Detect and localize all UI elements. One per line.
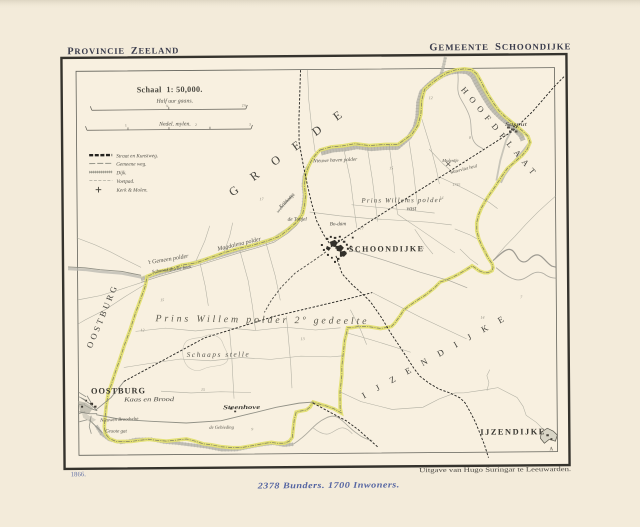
svg-text:14: 14 [439,195,443,200]
svg-text:1745: 1745 [452,182,460,187]
svg-text:Groote gat: Groote gat [105,428,127,434]
svg-text:A: A [549,446,553,452]
svg-text:2: 2 [195,123,197,127]
svg-text:Schaal 1: 50,000.: Schaal 1: 50,000. [137,85,203,95]
svg-text:de Tunjel: de Tunjel [288,217,308,223]
svg-text:2378 Bunders. 1700 Inwoners.: 2378 Bunders. 1700 Inwoners. [256,479,399,490]
svg-text:Steenhove: Steenhove [223,404,261,411]
svg-text:2½: 2½ [242,104,247,108]
svg-text:Kerk & Molen.: Kerk & Molen. [115,187,147,193]
svg-text:Molentje: Molentje [441,158,458,163]
svg-text:Bo-dam: Bo-dam [330,221,347,227]
svg-text:12: 12 [429,95,433,100]
svg-text:14: 14 [480,315,484,320]
svg-text:Nedel. mylen.: Nedel. mylen. [158,120,191,127]
svg-text:1866.: 1866. [71,471,87,478]
svg-text:Voetpad.: Voetpad. [116,179,134,185]
svg-text:Straat en Kunstweg.: Straat en Kunstweg. [116,153,158,159]
svg-text:12: 12 [141,327,145,332]
svg-text:15: 15 [160,297,164,302]
svg-text:15: 15 [389,165,393,170]
svg-text:8: 8 [469,135,471,140]
svg-text:SCHOONDIJKE: SCHOONDIJKE [349,244,423,254]
svg-text:Half uur gaans.: Half uur gaans. [155,97,193,104]
svg-text:PROVINCIE ZEELAND: PROVINCIE ZEELAND [67,45,179,57]
svg-text:1: 1 [125,123,127,127]
svg-text:15: 15 [420,245,424,250]
svg-text:Gemeene weg.: Gemeene weg. [116,161,146,167]
svg-text:13: 13 [301,336,305,341]
svg-text:¼: ¼ [166,104,169,108]
svg-text:9: 9 [251,426,253,431]
svg-text:Schaaps stelle: Schaaps stelle [187,351,250,359]
svg-text:IJZENDIJKE: IJZENDIJKE [480,427,544,436]
svg-text:de Gebieding: de Gebieding [209,425,234,430]
svg-text:vast: vast [407,206,417,212]
svg-text:15: 15 [201,387,205,392]
svg-text:Kaas en Brood: Kaas en Brood [123,396,176,403]
svg-text:Sasput: Sasput [505,122,528,128]
svg-text:3: 3 [249,122,251,126]
svg-text:Dijk.: Dijk. [115,170,126,176]
svg-text:Uitgave van Hugo Suringar te L: Uitgave van Hugo Suringar te Leeuwarden. [419,466,572,474]
svg-text:OOSTBURG: OOSTBURG [91,386,146,395]
